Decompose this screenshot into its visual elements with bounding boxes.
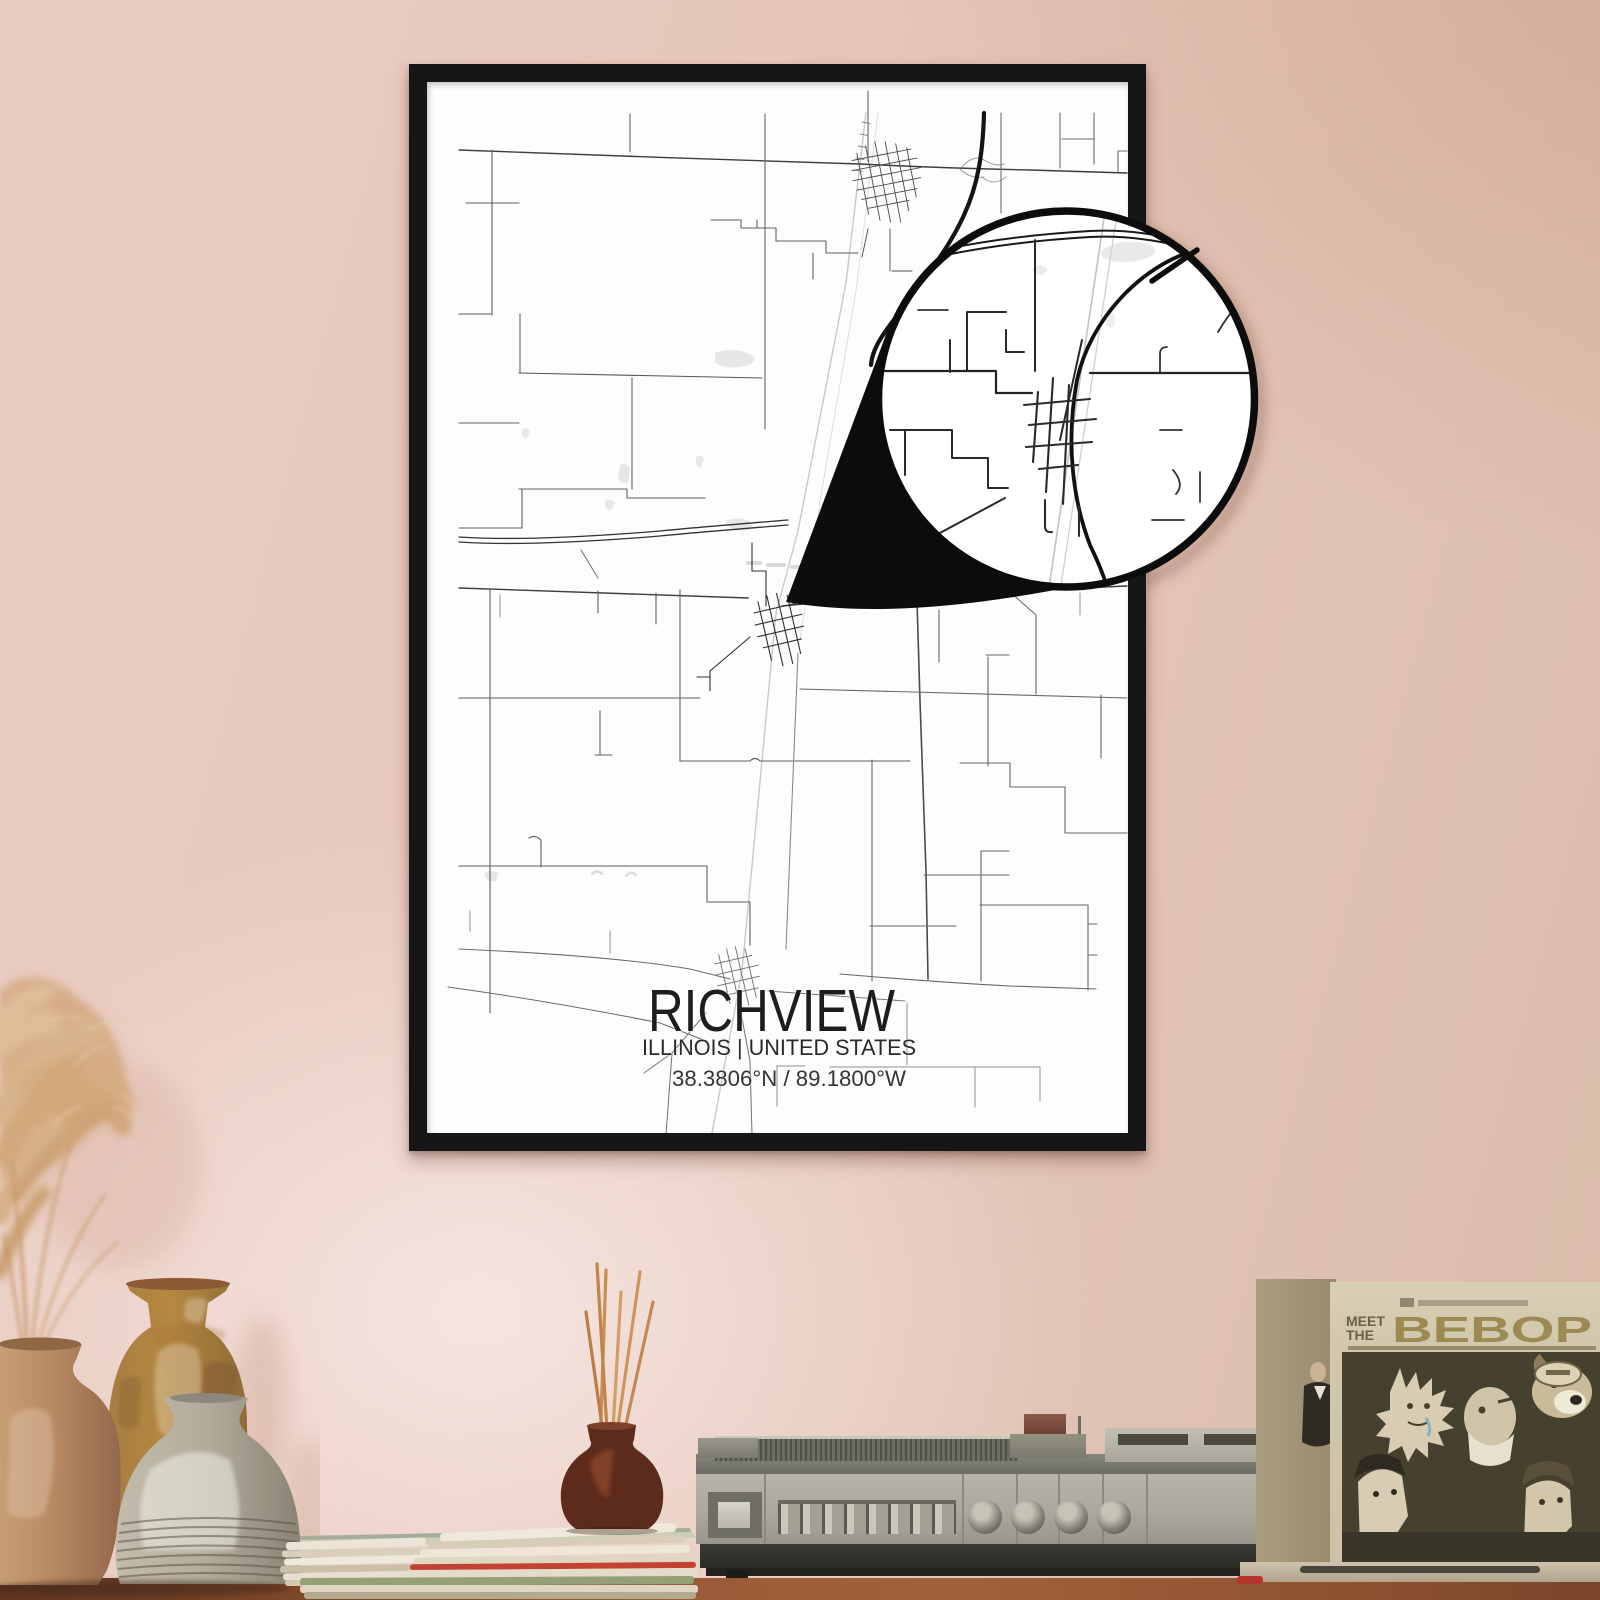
svg-text:THE: THE [1346,1327,1374,1343]
svg-text:38.3806°N / 89.1800°W: 38.3806°N / 89.1800°W [672,1066,907,1091]
svg-text:ILLINOIS | UNITED STATES: ILLINOIS | UNITED STATES [642,1035,916,1060]
svg-text:BEBOP: BEBOP [1392,1309,1592,1350]
